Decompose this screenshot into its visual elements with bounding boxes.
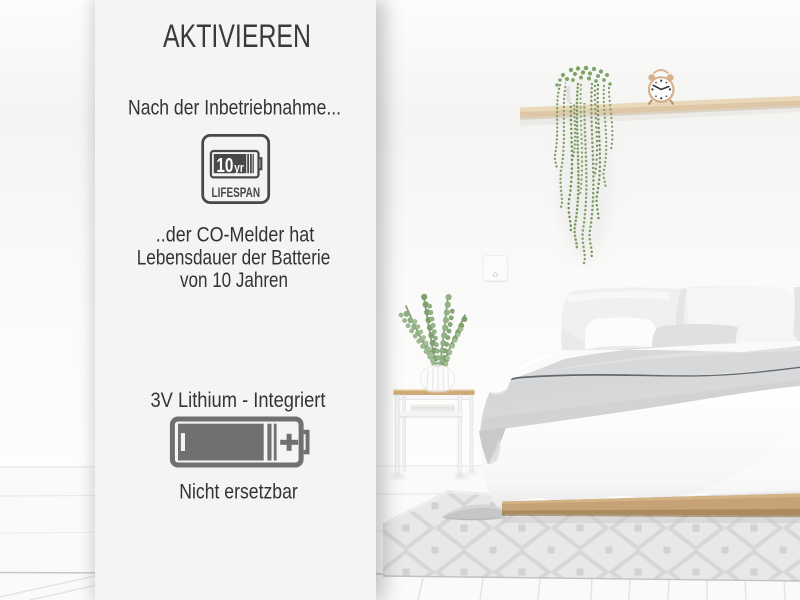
svg-text:AKTIVIEREN: AKTIVIEREN xyxy=(163,18,311,54)
svg-text:Lebensdauer der Batterie: Lebensdauer der Batterie xyxy=(137,247,331,270)
svg-text:10: 10 xyxy=(216,155,233,177)
svg-text:Nicht ersetzbar: Nicht ersetzbar xyxy=(179,481,298,504)
svg-text:Nach der Inbetriebnahme...: Nach der Inbetriebnahme... xyxy=(128,97,341,120)
svg-text:LIFESPAN: LIFESPAN xyxy=(212,185,261,200)
svg-text:3V Lithium - Integriert: 3V Lithium - Integriert xyxy=(151,389,326,412)
svg-text:von 10 Jahren: von 10 Jahren xyxy=(180,269,288,292)
svg-text:yr: yr xyxy=(234,161,244,175)
svg-text:..der CO-Melder hat: ..der CO-Melder hat xyxy=(156,224,315,247)
